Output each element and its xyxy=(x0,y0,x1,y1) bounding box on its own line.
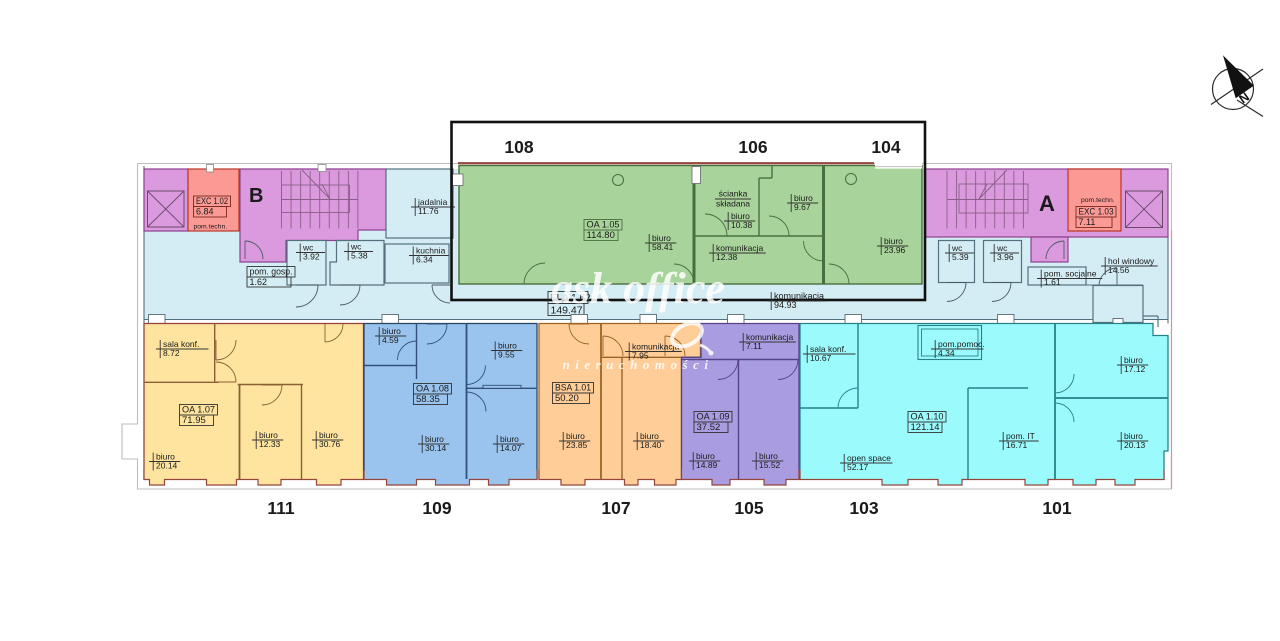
svg-text:111: 111 xyxy=(267,498,295,518)
svg-text:15.52: 15.52 xyxy=(759,460,781,470)
svg-text:N: N xyxy=(1237,90,1252,107)
svg-text:121.14: 121.14 xyxy=(911,422,940,433)
svg-text:107: 107 xyxy=(601,498,630,518)
svg-text:OA 1.08: OA 1.08 xyxy=(416,384,449,395)
svg-text:OA 1.07: OA 1.07 xyxy=(182,405,215,416)
svg-text:pom.techn.: pom.techn. xyxy=(194,224,228,231)
svg-text:16.71: 16.71 xyxy=(1006,440,1028,450)
svg-text:nieruchomości: nieruchomości xyxy=(563,357,714,372)
svg-text:9.55: 9.55 xyxy=(498,350,515,360)
svg-text:30.14: 30.14 xyxy=(425,443,447,453)
svg-text:105: 105 xyxy=(734,498,763,518)
svg-text:14.56: 14.56 xyxy=(1108,265,1130,275)
svg-text:50.20: 50.20 xyxy=(555,393,579,404)
svg-text:37.52: 37.52 xyxy=(697,422,721,433)
svg-text:3.92: 3.92 xyxy=(303,252,320,262)
svg-text:58.35: 58.35 xyxy=(416,394,440,405)
svg-text:4.59: 4.59 xyxy=(382,335,399,345)
svg-text:17.12: 17.12 xyxy=(1124,364,1146,374)
svg-text:OA 1.10: OA 1.10 xyxy=(911,412,944,423)
svg-text:A: A xyxy=(1039,191,1055,216)
svg-text:EXC 1.03: EXC 1.03 xyxy=(1079,207,1114,217)
svg-text:6.84: 6.84 xyxy=(196,207,214,217)
svg-text:94.93: 94.93 xyxy=(774,300,797,310)
svg-text:106: 106 xyxy=(738,137,767,157)
svg-text:103: 103 xyxy=(849,498,878,518)
svg-text:108: 108 xyxy=(504,137,533,157)
svg-text:23.96: 23.96 xyxy=(884,245,906,255)
svg-text:4.34: 4.34 xyxy=(938,348,955,358)
svg-text:12.33: 12.33 xyxy=(259,439,281,449)
svg-text:104: 104 xyxy=(871,137,900,157)
svg-text:1.61: 1.61 xyxy=(1044,277,1061,287)
svg-text:OA 1.05: OA 1.05 xyxy=(587,220,620,231)
svg-text:ask office: ask office xyxy=(551,264,725,313)
svg-text:B: B xyxy=(249,185,263,207)
svg-text:14.07: 14.07 xyxy=(500,443,522,453)
svg-text:5.39: 5.39 xyxy=(952,252,969,262)
svg-text:10.67: 10.67 xyxy=(810,353,832,363)
svg-text:10.38: 10.38 xyxy=(731,220,753,230)
svg-text:ścianka: ścianka xyxy=(719,189,748,199)
svg-text:18.40: 18.40 xyxy=(640,440,662,450)
svg-text:114.80: 114.80 xyxy=(587,230,615,241)
svg-text:101: 101 xyxy=(1042,498,1071,518)
svg-text:23.85: 23.85 xyxy=(566,440,588,450)
svg-text:6.34: 6.34 xyxy=(416,255,433,265)
svg-text:3.96: 3.96 xyxy=(997,252,1014,262)
svg-text:pom.techn.: pom.techn. xyxy=(1081,197,1115,204)
svg-text:pom. gosp.: pom. gosp. xyxy=(250,267,293,277)
svg-text:20.13: 20.13 xyxy=(1124,440,1146,450)
svg-text:58.41: 58.41 xyxy=(652,242,674,252)
svg-text:OA 1.09: OA 1.09 xyxy=(697,412,730,423)
svg-text:71.95: 71.95 xyxy=(182,415,206,426)
svg-text:12.38: 12.38 xyxy=(716,252,738,262)
svg-text:30.76: 30.76 xyxy=(319,439,341,449)
svg-text:8.72: 8.72 xyxy=(163,348,180,358)
svg-text:1.62: 1.62 xyxy=(250,277,268,287)
svg-text:BSA 1.01: BSA 1.01 xyxy=(555,383,591,394)
svg-text:14.89: 14.89 xyxy=(696,460,718,470)
svg-text:5.38: 5.38 xyxy=(351,251,368,261)
svg-text:7.11: 7.11 xyxy=(746,341,762,351)
svg-text:109: 109 xyxy=(422,498,451,518)
svg-text:9.67: 9.67 xyxy=(794,202,811,212)
svg-text:7.11: 7.11 xyxy=(1079,217,1096,227)
svg-text:11.76: 11.76 xyxy=(418,206,439,216)
svg-text:52.17: 52.17 xyxy=(847,462,869,472)
svg-text:20.14: 20.14 xyxy=(156,461,178,471)
svg-text:składana: składana xyxy=(716,199,750,209)
svg-text:EXC 1.02: EXC 1.02 xyxy=(196,196,228,206)
